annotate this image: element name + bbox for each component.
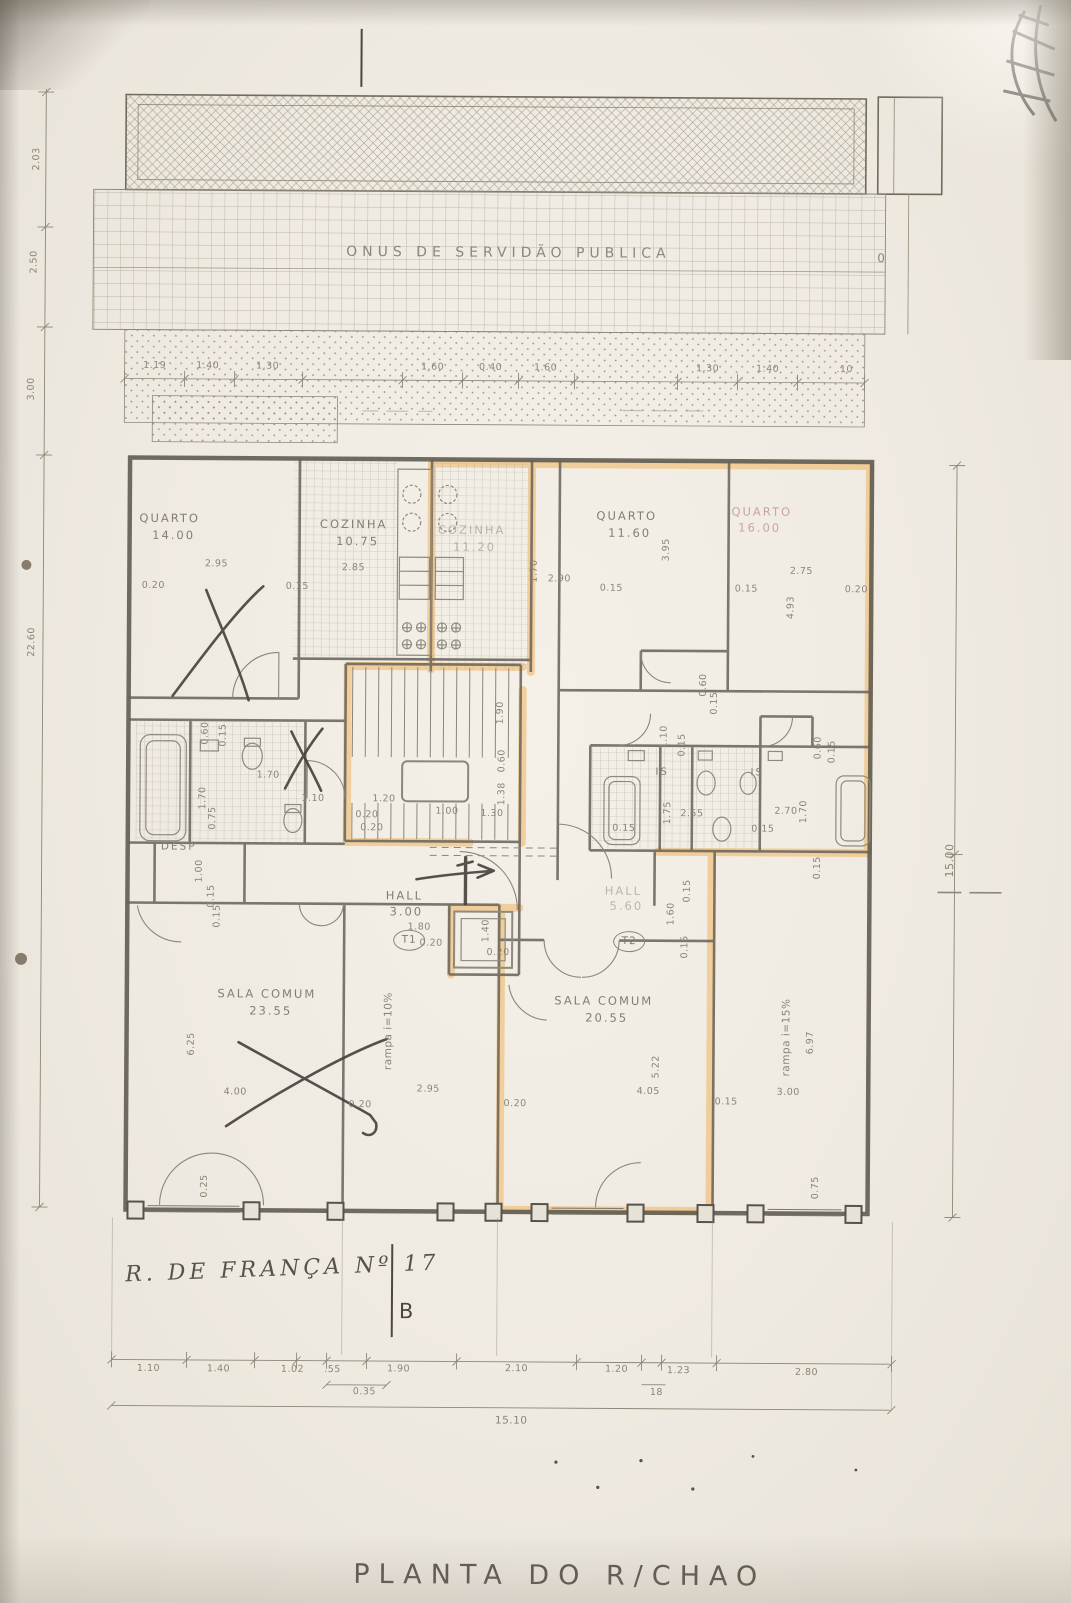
- dim-label: 0.15: [219, 723, 229, 746]
- room-label-quarto-ne: QUARTO: [731, 506, 792, 518]
- dim-label: 1.10: [301, 794, 324, 804]
- dim-label: 0.60: [497, 749, 507, 772]
- dim-label: 6.97: [806, 1031, 816, 1054]
- dim-label: 0.75: [811, 1176, 821, 1199]
- unit-badge-t2: T2: [613, 931, 645, 952]
- dim-label: 2.03: [32, 147, 42, 170]
- dim-label: 3.95: [662, 538, 672, 561]
- dim-label: 0.60: [814, 736, 824, 759]
- zero-marker: 0: [877, 252, 885, 264]
- dim-label: 1.30: [696, 364, 719, 374]
- dim-label: 2.85: [342, 563, 365, 573]
- dim-label: 1.02: [281, 1365, 304, 1375]
- unit-label: T2: [622, 935, 637, 947]
- dim-label: 1.19: [143, 361, 166, 371]
- dim-label: 1.00: [435, 807, 458, 817]
- dim-label: 5.22: [652, 1055, 662, 1078]
- dim-label: 1.40: [196, 361, 219, 371]
- dim-label: 1.60: [534, 363, 557, 373]
- dim-label: 0.75: [208, 806, 218, 829]
- dim-label: 2.95: [417, 1085, 440, 1095]
- dim-label: 2.10: [505, 1364, 528, 1374]
- plant-sketch: [1003, 5, 1057, 121]
- room-label-hall-t2: HALL: [605, 886, 642, 898]
- dim-label: 3.00: [777, 1088, 800, 1098]
- drawing-title: PLANTA DO R/CHAO: [353, 1559, 766, 1593]
- dim-label: 0.20: [349, 1100, 372, 1110]
- dim-label: 0.15: [683, 879, 693, 902]
- dim-label: 1.30: [480, 809, 503, 819]
- dim-label: 2.75: [790, 567, 813, 577]
- dim-label: 2.95: [205, 559, 228, 569]
- room-label-cozinha-2: COZINHA: [438, 525, 506, 537]
- scatter-dots: [554, 1454, 857, 1492]
- dim-label: 0.20: [845, 585, 868, 595]
- section-letter-b: B: [399, 1299, 414, 1323]
- tiled-floors: [135, 460, 760, 850]
- dim-label: 0.15: [813, 856, 823, 879]
- ramp-label-right: rampa i=15%: [781, 999, 792, 1077]
- dim-label: 1.60: [421, 363, 444, 373]
- dim-label: 1.38: [497, 782, 507, 805]
- bottom-dimension-lines: [107, 1215, 896, 1414]
- room-label-is-1: IS: [655, 768, 668, 778]
- room-label-sala-t2: SALA COMUM: [554, 995, 653, 1007]
- dim-label: 0.20: [486, 948, 509, 958]
- dim-label: 0.15: [735, 584, 758, 594]
- dim-label: 0.15: [612, 824, 635, 834]
- dim-label: 0.15: [827, 740, 837, 763]
- dim-label: 1.20: [372, 794, 395, 804]
- dim-label: 1.20: [605, 1365, 628, 1375]
- dim-label: 0.15: [207, 884, 217, 907]
- dim-label: 0.60: [201, 721, 211, 744]
- dim-label: 0.25: [200, 1174, 210, 1197]
- dim-label: 1.30: [256, 362, 279, 372]
- dim-label: 1.00: [195, 859, 205, 882]
- dim-label: 1.40: [756, 365, 779, 375]
- dim-label: 1.23: [667, 1366, 690, 1376]
- floorplan-drawing: [0, 0, 1071, 1603]
- dim-label-total: 15.10: [495, 1416, 528, 1427]
- dim-label: 15.00: [944, 843, 955, 877]
- dim-label: 18: [650, 1388, 663, 1398]
- room-area: 14.00: [152, 530, 195, 542]
- dim-label: 0.15: [286, 582, 309, 592]
- dim-label: 1.10: [660, 725, 670, 748]
- room-label-sala-t1: SALA COMUM: [217, 988, 316, 1000]
- room-area: 23.55: [249, 1006, 292, 1018]
- dim-label: 2.55: [680, 809, 703, 819]
- dim-label: 0.15: [710, 691, 720, 714]
- room-area: 20.55: [585, 1013, 628, 1025]
- dim-label: 2.90: [548, 574, 571, 584]
- unit-badge-t1: T1: [393, 930, 425, 951]
- room-area: 5.60: [610, 901, 644, 913]
- servitude-band-label: ONUS DE SERVIDÃO PUBLICA: [346, 245, 671, 261]
- dim-label: .10: [836, 365, 853, 375]
- room-label-quarto-nw: QUARTO: [139, 513, 200, 525]
- ramp-label-left: rampa i=10%: [383, 992, 394, 1070]
- dim-label: 1.60: [666, 902, 676, 925]
- dim-label: 1.70: [799, 800, 809, 823]
- room-label-cozinha-1: COZINHA: [320, 519, 388, 531]
- dim-label: 1.90: [496, 701, 506, 724]
- room-area: 16.00: [738, 522, 781, 534]
- dim-label: 0.15: [715, 1097, 738, 1107]
- dim-label: 22.60: [27, 627, 37, 657]
- dim-label: 0.15: [751, 825, 774, 835]
- dim-label: 1.75: [663, 801, 673, 824]
- dim-label: 4.00: [224, 1087, 247, 1097]
- dim-label: 1.70: [257, 771, 280, 781]
- dim-label: 0.15: [212, 904, 222, 927]
- dim-label: 2.80: [795, 1368, 818, 1378]
- dim-label: .55: [324, 1365, 341, 1375]
- servitude-grid-band: [93, 189, 909, 334]
- dim-label: 4.05: [637, 1087, 660, 1097]
- dim-label: 0.15: [678, 733, 688, 756]
- room-area: 11.20: [453, 542, 496, 554]
- dim-label: 2.50: [29, 250, 39, 273]
- room-label-desp: DESP: [161, 841, 197, 852]
- dim-label: 0.40: [479, 363, 502, 373]
- blueprint-paper: ONUS DE SERVIDÃO PUBLICA 0 1.19 1.40 1.3…: [0, 0, 1071, 1603]
- dim-label: 3.00: [27, 377, 37, 400]
- dim-label: 0.20: [504, 1099, 527, 1109]
- dim-label: 6.25: [187, 1032, 197, 1055]
- unit-label: T1: [402, 934, 417, 946]
- dim-label: 1.40: [481, 919, 491, 942]
- dotted-band: [120, 329, 869, 446]
- room-label-quarto-n: QUARTO: [596, 511, 657, 523]
- dim-label: 0.60: [699, 673, 709, 696]
- floorplan-photo: ONUS DE SERVIDÃO PUBLICA 0 1.19 1.40 1.3…: [0, 0, 1071, 1603]
- dim-label: 0.35: [353, 1387, 376, 1397]
- dim-label: 4.93: [786, 596, 796, 619]
- hole-punch-marks: [15, 560, 31, 965]
- dim-label: 1.10: [137, 1364, 160, 1374]
- dim-label: 0.20: [355, 810, 378, 820]
- dim-label: 2.70: [774, 807, 797, 817]
- room-label-hall-t1: HALL: [386, 890, 423, 902]
- room-label-is-2: IS: [750, 768, 763, 778]
- dim-label: 0.20: [142, 581, 165, 591]
- dim-label: 0.15: [680, 935, 690, 958]
- dim-label: 1.40: [207, 1364, 230, 1374]
- room-area: 10.75: [336, 536, 379, 548]
- dim-label: 0.20: [360, 823, 383, 833]
- dim-label: 1.90: [387, 1364, 410, 1374]
- room-area: 3.00: [389, 906, 423, 918]
- dim-label: 1.70: [530, 559, 540, 582]
- dim-label: 0.15: [600, 584, 623, 594]
- room-area: 11.60: [608, 528, 651, 540]
- servitude-hatch-band: [126, 92, 943, 194]
